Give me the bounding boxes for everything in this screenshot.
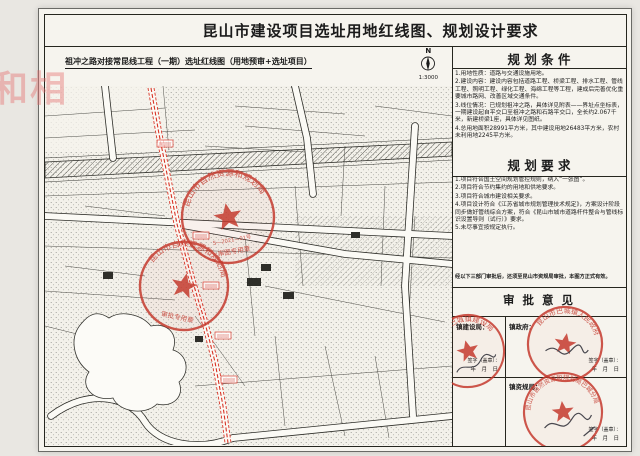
requirement-item: 1.项目符合国土空间规划管控规则，纳入“一张图”。 (455, 177, 624, 184)
condition-item: 2.建设内容：建设内容包括道路工程、桥梁工程、排水工程、管线工程、照明工程、绿化… (455, 79, 624, 101)
map-scale: 1:3000 (419, 76, 438, 82)
planning-conditions-items: 1.用地性质：道路与交通设施用地。 2.建设内容：建设内容包括道路工程、桥梁工程… (455, 71, 624, 149)
compass-icon (420, 55, 436, 72)
approval-table: 镇建设局： 签字（盖章）： 年 月 日 昆山市巴城镇建设局 (452, 316, 626, 446)
scanned-document: 和相 昆山市建设项目选址用地红线图、规划设计要求 祖冲之路对接常昆线工程（一期）… (0, 0, 640, 456)
requirement-item: 3.项目符合城市建设相关要求。 (455, 194, 624, 201)
map-title-bar: 祖冲之路对接常昆线工程（一期）选址红线图（用地预审+选址项目） N 1:3000 (45, 46, 452, 86)
requirement-item: 2.项目符合节约集约的用地和供地要求。 (455, 185, 624, 192)
planning-requirements-items: 1.项目符合国土空间规划管控规则，纳入“一张图”。 2.项目符合节约集约的用地和… (455, 177, 624, 245)
resources-planning-stamp: 昆山市自然资源和规划局巴城分局 (518, 367, 608, 446)
condition-item: 4.总用地面积28991平方米，其中建设用地26483平方米，农村未利用地224… (455, 126, 624, 141)
construction-bureau-stamp: 昆山市巴城镇建设局 (452, 309, 510, 393)
approval-cell-construction-bureau: 镇建设局： 签字（盖章）： 年 月 日 昆山市巴城镇建设局 (452, 317, 505, 377)
approval-cell-resources-planning-bureau: 镇资规局： 签字（盖章）： 年 月 日 昆山市自然资源和规划局巴城分局 (505, 377, 626, 446)
north-compass: N 1:3000 (419, 48, 438, 82)
title-bar: 昆山市建设项目选址用地红线图、规划设计要求 (45, 15, 626, 47)
approval-note: 经以下三部门审批后，还须至昆山市资规局审批，本图方正式有效。 (452, 270, 626, 288)
requirement-item: 5.未尽事宜按规定执行。 (455, 225, 624, 232)
north-label: N (419, 48, 438, 55)
map-title: 祖冲之路对接常昆线工程（一期）选址红线图（用地预审+选址项目） (65, 56, 312, 69)
map-panel: 祖冲之路对接常昆线工程（一期）选址红线图（用地预审+选址项目） N 1:3000 (45, 46, 453, 446)
paper-sheet: 昆山市建设项目选址用地红线图、规划设计要求 祖冲之路对接常昆线工程（一期）选址红… (38, 8, 632, 452)
page-title: 昆山市建设项目选址用地红线图、规划设计要求 (132, 20, 538, 41)
requirement-item: 4.项目设计符合《江苏省城市规划管理技术规定》，方案设计阶段同步做好管线综合方案… (455, 202, 624, 224)
condition-item: 1.用地性质：道路与交通设施用地。 (455, 71, 624, 78)
cadastral-map: 昆山市自然资源和规划局 S—2021—01号 审图专用章 昆山市自然资源和规划局 (45, 86, 452, 445)
planning-requirements-header: 规 划 要 求 (452, 152, 626, 177)
condition-item: 3.线位情况：已规划祖冲之路，具体详见附表——界址点坐标表，一期建设起自平交口至… (455, 103, 624, 125)
planning-conditions-header: 规 划 条 件 (452, 46, 626, 69)
requirements-panel: 规 划 条 件 1.用地性质：道路与交通设施用地。 2.建设内容：建设内容包括道… (452, 46, 626, 446)
document-frame: 昆山市建设项目选址用地红线图、规划设计要求 祖冲之路对接常昆线工程（一期）选址红… (44, 14, 627, 447)
